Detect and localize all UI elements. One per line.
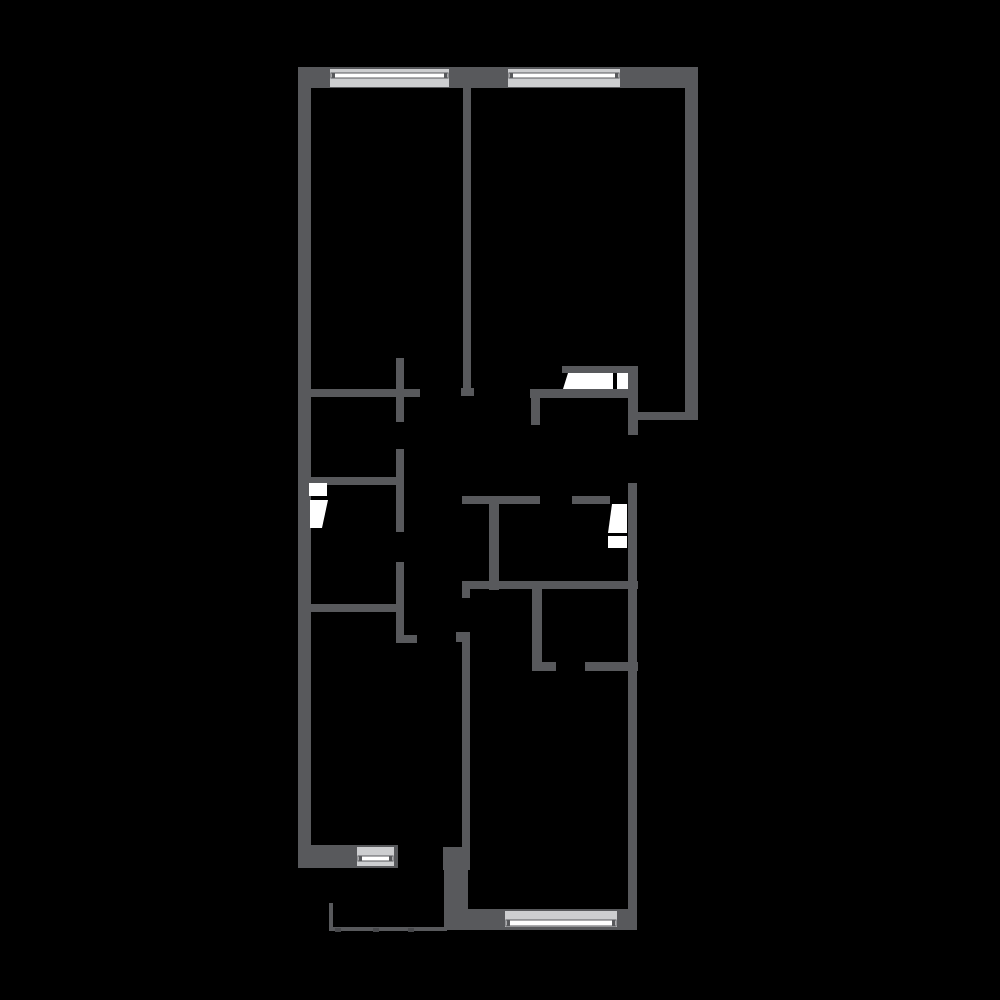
balcony-rail-post-3 <box>408 928 414 932</box>
wall-small-room-left-wall <box>532 589 542 671</box>
wall-corridor-wall-tab <box>456 632 470 642</box>
window-bottom-left-tick-right <box>389 856 392 861</box>
window-top-right-stripe <box>509 73 619 78</box>
wall-exterior-right-lower <box>628 483 637 928</box>
balcony-rail-post-2 <box>373 928 379 932</box>
window-bottom-right-tick-right <box>612 920 615 926</box>
door-top-right-panel <box>617 373 628 389</box>
window-top-left-tick-left <box>332 73 335 78</box>
floor-plan-image <box>0 0 1000 1000</box>
door-closet-panel <box>309 483 327 496</box>
floor-plan-svg <box>0 0 1000 1000</box>
wall-hall-top-right-stub <box>531 398 540 425</box>
balcony-rail-left <box>329 903 333 931</box>
wall-left-room-top <box>308 604 397 612</box>
door-right-panel <box>608 536 627 548</box>
wall-corner-block <box>443 847 470 870</box>
wall-corridor-wall <box>462 632 470 847</box>
wall-mid-horizontal-right <box>572 496 610 504</box>
door-top-right-leaf <box>563 373 613 389</box>
wall-closet-right-foot <box>396 635 417 643</box>
wall-mid-stub <box>462 589 470 598</box>
window-top-right-tick-left <box>510 73 513 78</box>
wall-mid-vertical <box>489 504 499 590</box>
window-bottom-left-stripe <box>358 856 393 861</box>
window-top-left-tick-right <box>444 73 447 78</box>
wall-exterior-right-upper <box>685 67 698 420</box>
window-bottom-right-stripe <box>506 920 616 926</box>
wall-mid-horizontal-long <box>462 581 638 589</box>
wall-mid-horizontal-left <box>462 496 540 504</box>
window-top-left-stripe <box>331 73 448 78</box>
wall-divider-top-rooms <box>463 88 471 388</box>
wall-small-room-foot <box>532 662 556 671</box>
window-top-right-tick-right <box>615 73 618 78</box>
wall-small-room-bottom-right <box>585 662 638 671</box>
wall-exterior-left <box>298 67 311 868</box>
wall-door-top-lintel <box>562 366 628 373</box>
balcony-rail-post-1 <box>335 928 341 932</box>
window-bottom-left-tick-left <box>359 856 362 861</box>
wall-niche-left <box>628 366 638 435</box>
wall-closet-right-wall-lower <box>396 562 404 643</box>
wall-cross-vertical-upper <box>396 358 404 422</box>
wall-hall-top-right <box>530 389 638 398</box>
window-bottom-right-tick-left <box>507 920 510 926</box>
balcony-rail-bottom <box>329 927 447 931</box>
wall-niche-bottom <box>633 412 698 420</box>
wall-closet-right-wall <box>396 449 404 532</box>
wall-divider-foot <box>461 388 474 396</box>
